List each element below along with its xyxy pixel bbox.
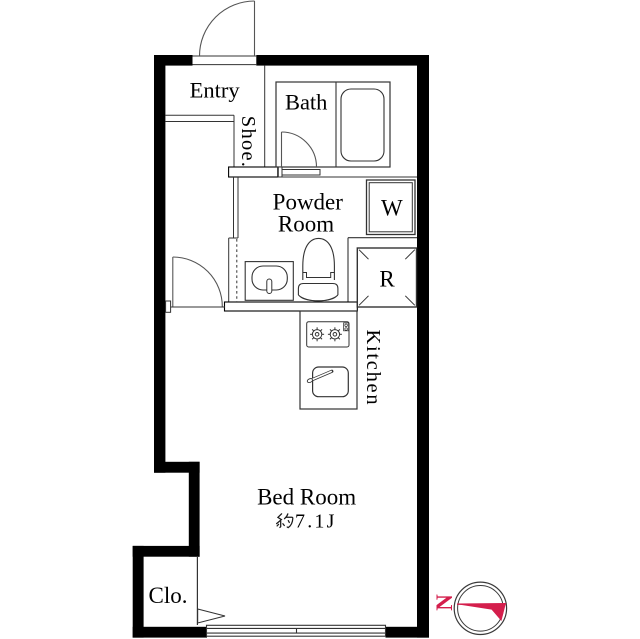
svg-text:7.1J: 7.1J [295,510,337,532]
svg-text:Shoe.: Shoe. [237,116,259,168]
svg-text:Entry: Entry [190,77,241,102]
svg-text:Bath: Bath [285,89,328,114]
svg-text:N: N [432,594,457,611]
svg-text:W: W [381,196,403,221]
svg-text:Room: Room [278,211,334,236]
svg-text:Clo.: Clo. [149,583,188,608]
svg-text:Kitchen: Kitchen [362,330,384,407]
svg-text:Bed Room: Bed Room [257,484,356,509]
svg-text:R: R [379,267,395,292]
